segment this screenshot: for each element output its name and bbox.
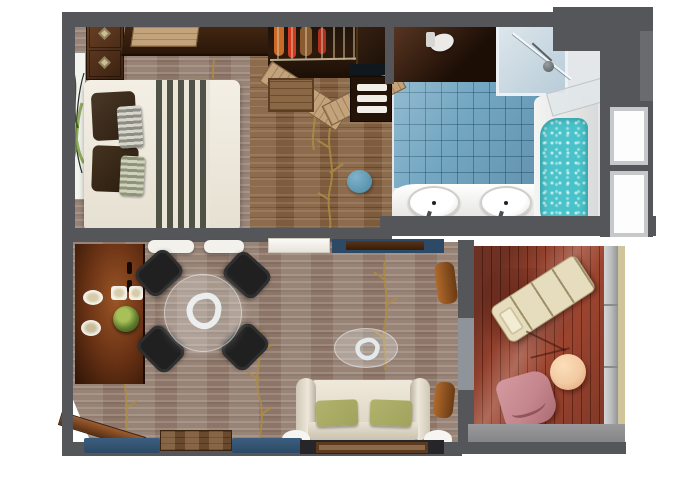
green-cushion <box>316 399 359 426</box>
accent-pillow <box>117 105 144 149</box>
left-wall-lower <box>62 244 73 456</box>
writing-desk <box>332 239 444 253</box>
toilet-room <box>394 22 496 82</box>
sink-drain <box>504 201 508 205</box>
plate <box>83 290 103 305</box>
railing-trim <box>618 246 625 428</box>
navy-ledge <box>232 438 302 453</box>
white-ottoman <box>204 240 244 253</box>
left-wall-upper <box>62 12 75 244</box>
window-opening <box>614 111 644 161</box>
accent-pillow <box>119 155 145 196</box>
floor-plan <box>0 0 680 486</box>
nightstand <box>86 18 124 80</box>
wall-pilaster <box>640 31 653 101</box>
green-cushion <box>370 399 413 426</box>
ledge-wood-frame <box>316 442 428 453</box>
top-wall <box>62 12 604 27</box>
plant <box>113 306 139 332</box>
balcony-ledge <box>468 424 625 444</box>
console-counter <box>268 238 330 253</box>
sofa <box>296 376 430 442</box>
double-bed <box>84 80 240 232</box>
chair-seat-curve <box>509 395 548 420</box>
handle <box>127 262 132 274</box>
toilet-tank <box>426 32 435 47</box>
bath-hall-wall <box>385 22 394 84</box>
table-base-ring <box>352 337 382 363</box>
towel <box>357 106 387 113</box>
glass-dining-table <box>164 274 242 352</box>
blue-stool <box>347 170 372 193</box>
table-base-ring <box>182 290 226 338</box>
sideboard <box>75 244 145 384</box>
right-outer-wall <box>600 7 653 237</box>
balcony-door-glass <box>458 318 474 390</box>
plate <box>81 320 101 336</box>
window-opening <box>614 175 644 233</box>
glass-coffee-table <box>334 328 398 368</box>
towel <box>357 84 387 91</box>
sink-drain <box>432 201 436 205</box>
plate-set <box>111 286 127 300</box>
wood-step <box>160 430 232 451</box>
bathtub-water <box>540 118 588 228</box>
bed-runner <box>156 80 210 232</box>
balcony-railing <box>604 246 618 428</box>
towel <box>357 95 387 102</box>
navy-ledge <box>84 438 160 453</box>
storage-box <box>268 78 314 112</box>
round-side-table <box>550 354 586 390</box>
showerhead <box>543 61 554 72</box>
desk-top <box>346 241 424 250</box>
railing-joint <box>604 304 618 306</box>
balcony-front-wall <box>460 442 626 454</box>
railing-joint <box>604 366 618 368</box>
plate-set <box>129 286 143 300</box>
white-ottoman <box>148 240 194 253</box>
curtain-wood <box>432 381 456 419</box>
